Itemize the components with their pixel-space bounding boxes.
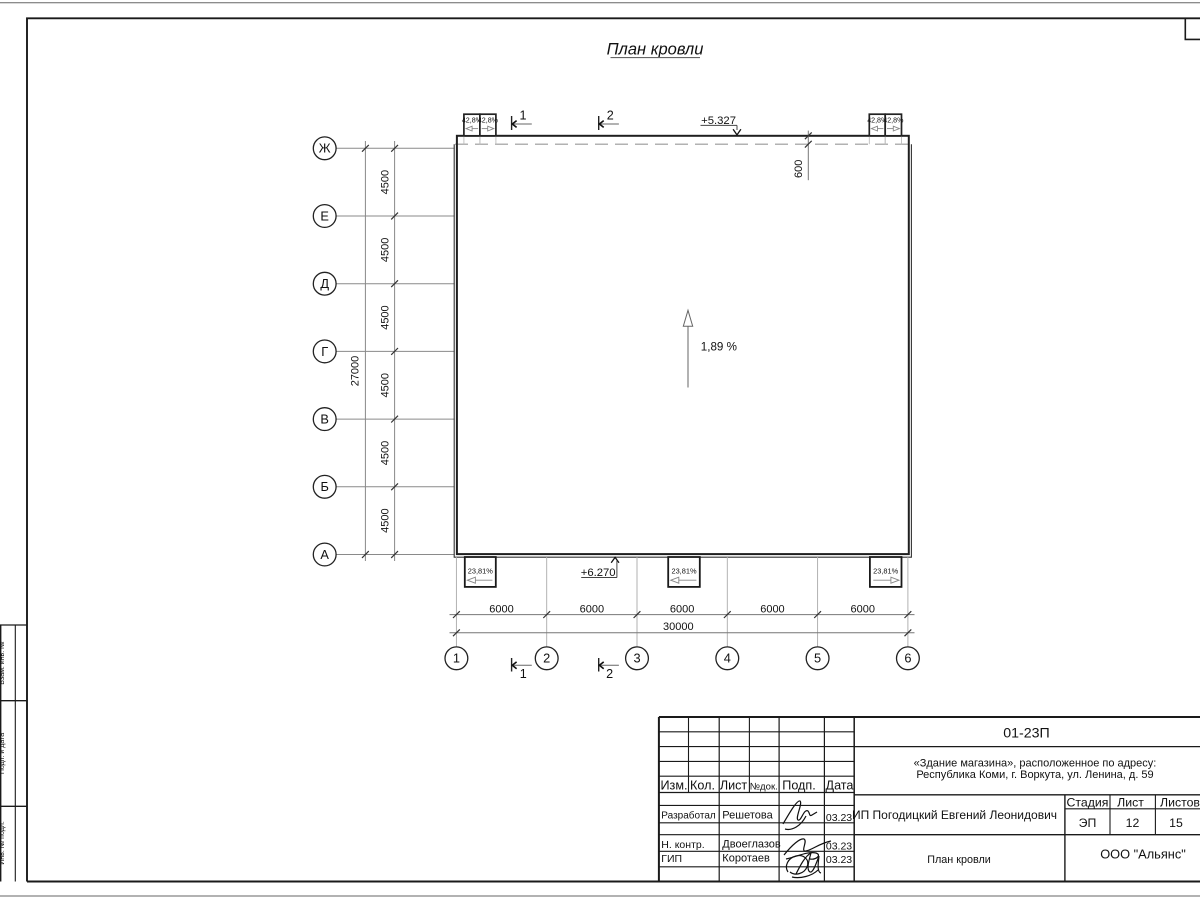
svg-text:А: А	[320, 547, 329, 562]
svg-text:4500: 4500	[379, 170, 391, 194]
svg-text:Стадия: Стадия	[1067, 795, 1109, 809]
svg-text:1: 1	[520, 667, 527, 681]
svg-text:4: 4	[724, 651, 731, 666]
svg-text:2: 2	[543, 651, 550, 666]
svg-text:Подп. и дата: Подп. и дата	[0, 733, 6, 774]
svg-text:ООО "Альянс": ООО "Альянс"	[1100, 847, 1186, 862]
svg-text:2: 2	[607, 108, 614, 122]
svg-text:42,8%: 42,8%	[478, 117, 499, 125]
svg-text:Лист: Лист	[1117, 795, 1144, 809]
svg-text:4500: 4500	[379, 305, 391, 329]
svg-text:ЭП: ЭП	[1079, 816, 1097, 830]
svg-text:6000: 6000	[670, 603, 694, 615]
svg-text:Г: Г	[321, 344, 328, 359]
svg-text:23,81%: 23,81%	[873, 567, 898, 576]
svg-text:6000: 6000	[851, 603, 875, 615]
svg-text:6000: 6000	[580, 603, 604, 615]
svg-text:1: 1	[519, 108, 526, 122]
svg-text:27000: 27000	[349, 356, 361, 387]
svg-text:Изм.: Изм.	[661, 778, 688, 792]
svg-text:15: 15	[1169, 816, 1183, 830]
svg-text:600: 600	[793, 160, 805, 178]
svg-text:12: 12	[1126, 816, 1140, 830]
svg-text:03.23: 03.23	[826, 812, 852, 824]
svg-text:Подп.: Подп.	[782, 778, 815, 792]
svg-text:Д: Д	[320, 276, 329, 291]
svg-text:4500: 4500	[379, 238, 391, 262]
svg-text:Н. контр.: Н. контр.	[661, 839, 704, 851]
svg-text:Взам. инв. №: Взам. инв. №	[0, 641, 6, 684]
svg-text:6: 6	[904, 651, 911, 666]
svg-text:03.23: 03.23	[826, 840, 852, 852]
svg-text:30000: 30000	[663, 621, 694, 633]
svg-text:Коротаев: Коротаев	[722, 853, 770, 865]
svg-text:6000: 6000	[760, 603, 784, 615]
svg-text:4500: 4500	[379, 373, 391, 397]
svg-text:№док.: №док.	[750, 781, 778, 792]
svg-text:Дата: Дата	[826, 778, 854, 792]
svg-text:Разработал: Разработал	[661, 809, 716, 821]
svg-text:4500: 4500	[379, 441, 391, 465]
svg-text:4500: 4500	[379, 508, 391, 532]
svg-text:Республика Коми, г. Воркута, у: Республика Коми, г. Воркута, ул. Ленина,…	[916, 769, 1153, 781]
svg-text:План кровли: План кровли	[927, 854, 991, 866]
svg-text:5: 5	[814, 651, 821, 666]
svg-text:+6.270: +6.270	[581, 567, 616, 579]
svg-text:Кол.: Кол.	[690, 778, 715, 792]
svg-text:2: 2	[606, 667, 613, 681]
svg-text:42,8%: 42,8%	[883, 117, 904, 125]
svg-text:В: В	[320, 412, 329, 427]
svg-text:03.23: 03.23	[826, 854, 852, 866]
svg-text:23,81%: 23,81%	[468, 567, 493, 576]
svg-text:1,89 %: 1,89 %	[701, 341, 737, 354]
svg-text:Листов: Листов	[1160, 795, 1200, 809]
svg-text:Двоеглазов: Двоеглазов	[722, 839, 781, 851]
svg-text:Лист: Лист	[720, 778, 748, 792]
svg-text:ГИП: ГИП	[661, 853, 682, 865]
svg-text:ИП Погодицкий Евгений Леонидов: ИП Погодицкий Евгений Леонидович	[852, 808, 1057, 822]
svg-text:1: 1	[453, 651, 460, 666]
svg-text:План кровли: План кровли	[607, 41, 704, 59]
svg-text:Б: Б	[320, 479, 328, 494]
svg-text:«Здание магазина», расположенн: «Здание магазина», расположенное по адре…	[914, 758, 1157, 770]
svg-text:Ж: Ж	[319, 141, 331, 156]
svg-text:Решетова: Решетова	[722, 809, 773, 821]
svg-text:6000: 6000	[489, 603, 513, 615]
svg-text:3: 3	[633, 651, 640, 666]
svg-text:Инв. № подл.: Инв. № подл.	[0, 821, 6, 865]
svg-text:Е: Е	[320, 208, 329, 223]
svg-text:23,81%: 23,81%	[671, 567, 696, 576]
svg-text:01-23П: 01-23П	[1003, 726, 1049, 742]
